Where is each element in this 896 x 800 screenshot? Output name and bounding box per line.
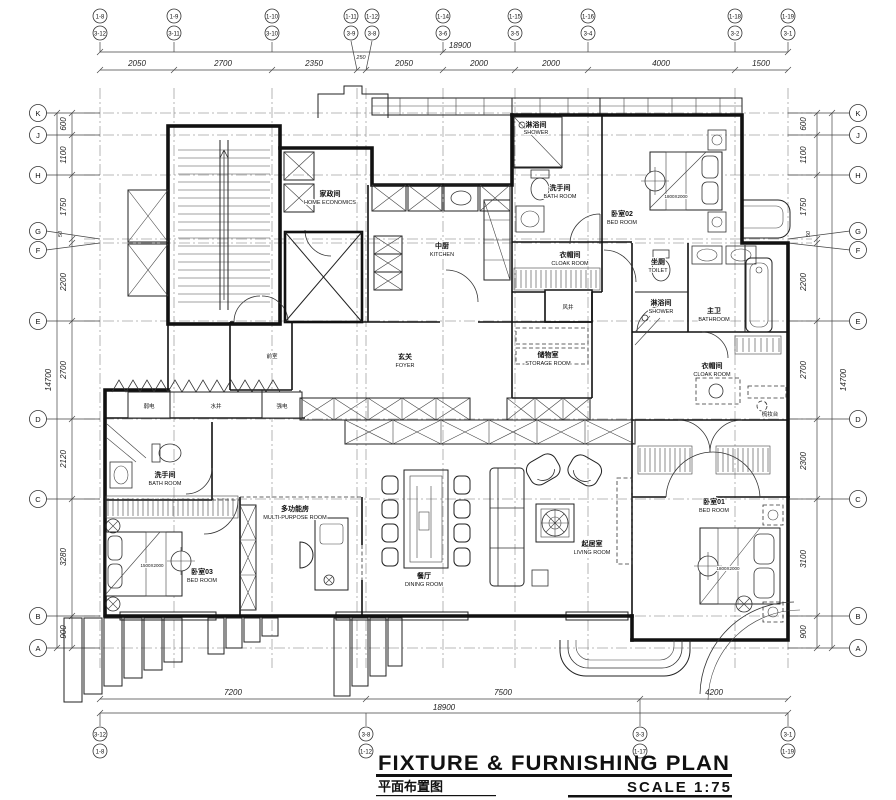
grid-row-label: F [36, 246, 41, 255]
room-label-zh: 淋浴间 [651, 298, 672, 307]
grid-row-label: G [855, 227, 861, 236]
room-label-zh: 坐厕 [651, 257, 665, 266]
grid-row-label: A [35, 644, 40, 653]
dim-left-7: 3280 [59, 548, 68, 566]
room-label-en: FOYER [396, 363, 415, 369]
grid-row-label: B [855, 612, 860, 621]
bed-size-label: 1800X2000 [716, 566, 740, 571]
small-labels: 前室 风井 水井 强电 弱电 梳妆台 1800X2000 1800X2000 1… [140, 194, 778, 571]
dim-top-5: 2000 [469, 59, 488, 68]
grid-row-label: D [855, 415, 861, 424]
grid-row-label: A [855, 644, 860, 653]
room-label-en: KITCHEN [430, 252, 454, 258]
grid-col-label: 3-5 [511, 32, 520, 38]
room-label-zh: 中厨 [435, 241, 449, 250]
cloak-top-rack [514, 268, 600, 290]
bed01-furniture [638, 446, 783, 622]
grid-col-label: 3-8 [368, 32, 377, 38]
dining-furniture [382, 470, 470, 568]
dim-top-overall: 18900 [449, 41, 472, 50]
grid-col-label: 1-19 [782, 15, 795, 21]
room-label-zh: 卧室01 [703, 497, 725, 506]
dim-top-1: 2700 [213, 59, 232, 68]
water-shaft-label: 水井 [210, 402, 222, 410]
grid-col-label: 1-8 [96, 750, 105, 756]
grid-col-label: 1-8 [96, 15, 105, 21]
room-label-zh: 多功能房 [281, 504, 309, 513]
room-label-zh: 家政间 [320, 189, 341, 198]
dim-left-0: 600 [59, 117, 68, 131]
dimensions-top: 18900 2050 2700 2350 250 2050 2000 2000 … [97, 41, 791, 73]
grid-row-label: E [35, 317, 40, 326]
grid-row-label: G [35, 227, 41, 236]
dim-right-6: 2300 [799, 452, 808, 471]
grid-col-label: 1-16 [582, 15, 595, 21]
room-label-en: BED ROOM [187, 578, 217, 584]
dim-bottom-0: 7200 [224, 688, 242, 697]
grid-col-label: 1-14 [437, 15, 450, 21]
dim-right-4: 2200 [799, 273, 808, 292]
drawing-title: FIXTURE & FURNISHING PLAN [378, 752, 730, 775]
grid-col-label: 1-12 [360, 750, 373, 756]
grid-bubbles-top: 1-8 3-12 1-9 3-11 1-10 3-10 1-11 3-9 1-1… [93, 9, 795, 70]
room-label-zh: 衣帽间 [560, 250, 581, 259]
room-label-en: SHOWER [524, 130, 549, 136]
drawing-title-zh: 平面布置图 [378, 779, 443, 794]
room-label-en: SHOWER [649, 309, 674, 315]
strong-electric-label: 强电 [276, 402, 288, 410]
grid-col-label: 3-1 [784, 32, 793, 38]
drawing-scale: SCALE 1:75 [627, 779, 732, 796]
dim-left-1: 1100 [59, 146, 68, 164]
grid-row-label: J [36, 131, 40, 140]
dimensions-right: 600 1100 1750 50 2200 2700 2300 3100 900… [799, 110, 848, 651]
room-label-zh: 玄关 [398, 352, 412, 361]
grid-col-label: 1-15 [509, 15, 522, 21]
grid-row-label: C [855, 495, 861, 504]
room-label-en: TOILET [648, 268, 668, 274]
grid-row-label: H [35, 171, 40, 180]
dim-top-2: 2350 [304, 59, 323, 68]
dim-left-overall: 14700 [44, 368, 53, 391]
dim-top-4: 2050 [394, 59, 413, 68]
grid-row-label: C [35, 495, 41, 504]
dim-bottom-overall: 18900 [433, 703, 456, 712]
room-label-en: BATH ROOM [149, 481, 182, 487]
dim-right-5: 2700 [799, 361, 808, 380]
dim-left-4: 2200 [59, 273, 68, 292]
grid-col-label: 3-12 [94, 733, 107, 739]
dim-left-5: 2700 [59, 361, 68, 380]
floor-plan-drawing: 18900 2050 2700 2350 250 2050 2000 2000 … [0, 0, 896, 800]
dimensions-left: 600 1100 1750 50 2200 2700 2120 3280 900… [44, 110, 75, 651]
grid-col-label: 3-3 [636, 733, 645, 739]
elevator [285, 232, 362, 322]
grid-col-label: 3-11 [168, 32, 180, 38]
room-label-zh: 淋浴间 [526, 120, 547, 129]
room-label-en: CLOAK ROOM [551, 261, 589, 267]
grid-row-label: D [35, 415, 41, 424]
title-block: FIXTURE & FURNISHING PLAN 平面布置图 SCALE 1:… [376, 752, 732, 798]
bed03-furniture [106, 496, 238, 611]
room-label-en: BED ROOM [699, 508, 729, 514]
grid-col-label: 1-10 [266, 15, 279, 21]
grid-col-label: 3-12 [94, 32, 107, 38]
dim-top-0: 2050 [127, 59, 146, 68]
dimensions-bottom: 7200 7500 4200 18900 [97, 688, 791, 716]
floor-plan-page: 18900 2050 2700 2350 250 2050 2000 2000 … [0, 0, 896, 800]
grid-col-label: 3-1 [784, 733, 793, 739]
room-label-en: BATH ROOM [544, 194, 577, 200]
dim-right-7: 3100 [799, 550, 808, 568]
room-label-zh: 洗手间 [550, 183, 571, 192]
room-label-zh: 主卫 [707, 306, 721, 315]
kitchen-fixtures [284, 152, 510, 290]
grid-col-label: 3-10 [266, 32, 279, 38]
title-zh-underline [376, 795, 496, 796]
grid-col-label: 3-2 [731, 32, 740, 38]
room-label-en: HOME ECONOMICS [304, 200, 356, 206]
room-label-zh: 餐厅 [416, 571, 431, 580]
grid-row-label: B [35, 612, 40, 621]
bed-size-label: 1800X2000 [664, 194, 688, 199]
bed02-furniture [641, 130, 726, 232]
room-label-zh: 卧室02 [611, 209, 633, 218]
dim-bottom-2: 4200 [705, 688, 723, 697]
grid-row-label: F [856, 246, 861, 255]
dim-left-6: 2120 [59, 450, 68, 469]
bed-size-label: 1500X2000 [140, 563, 164, 568]
room-label-en: CLOAK ROOM [693, 372, 731, 378]
dim-top-6: 2000 [541, 59, 560, 68]
room-label-en: MULTI-PURPOSE ROOM [263, 515, 327, 521]
grid-col-label: 1-12 [366, 15, 379, 21]
room-label-zh: 起居室 [581, 539, 603, 548]
multi-room-furniture [300, 518, 348, 590]
scale-underline [568, 795, 732, 798]
dim-left-2: 1750 [59, 198, 68, 216]
grid-col-label: 1-19 [782, 750, 795, 756]
grid-col-label: 3-6 [439, 32, 448, 38]
grid-col-label: 3-4 [584, 32, 593, 38]
dim-right-8: 900 [799, 625, 808, 639]
grid-bubbles-right: K J H G F E D C B A [788, 105, 867, 657]
dim-top-7: 4000 [652, 59, 670, 68]
air-shaft-label: 风井 [562, 303, 574, 311]
grid-row-label: H [855, 171, 860, 180]
grid-col-label: 3-9 [347, 32, 356, 38]
grid-row-label: K [855, 109, 860, 118]
room-label-en: LIVING ROOM [574, 550, 611, 556]
grid-row-label: J [856, 131, 860, 140]
room-label-zh: 储物室 [537, 350, 559, 359]
dressing-table-label: 梳妆台 [762, 410, 779, 418]
dim-top-3: 250 [355, 55, 366, 61]
room-label-zh: 卧室03 [191, 567, 213, 576]
stairwell [178, 140, 270, 310]
room-label-zh: 衣帽间 [702, 361, 723, 370]
cabinet-bands [240, 398, 635, 610]
dim-top-8: 1500 [752, 59, 770, 68]
grid-col-label: 1-11 [345, 15, 357, 21]
dim-right-2: 1750 [799, 198, 808, 216]
utility-band [112, 380, 302, 418]
room-label-en: STORAGE ROOM [525, 361, 571, 367]
weak-electric-label: 弱电 [143, 402, 155, 410]
grid-col-label: 1-18 [729, 15, 742, 21]
grid-bubbles-left: K J H G F E D C B A [30, 105, 101, 657]
grid-row-label: K [35, 109, 40, 118]
room-label-en: BED ROOM [607, 220, 637, 226]
grid-col-label: 3-8 [362, 733, 371, 739]
room-label-zh: 洗手间 [155, 470, 176, 479]
grid-col-label: 1-9 [170, 15, 179, 21]
dim-right-overall: 14700 [839, 368, 848, 391]
dim-right-1: 1100 [799, 146, 808, 164]
room-label-en: DINING ROOM [405, 582, 443, 588]
room-label-en: BATHROOM [698, 317, 730, 323]
dim-bottom-1: 7500 [494, 688, 512, 697]
ante-room-label: 前室 [266, 352, 278, 360]
dim-right-0: 600 [799, 117, 808, 131]
grid-row-label: E [855, 317, 860, 326]
title-underline [376, 774, 732, 777]
